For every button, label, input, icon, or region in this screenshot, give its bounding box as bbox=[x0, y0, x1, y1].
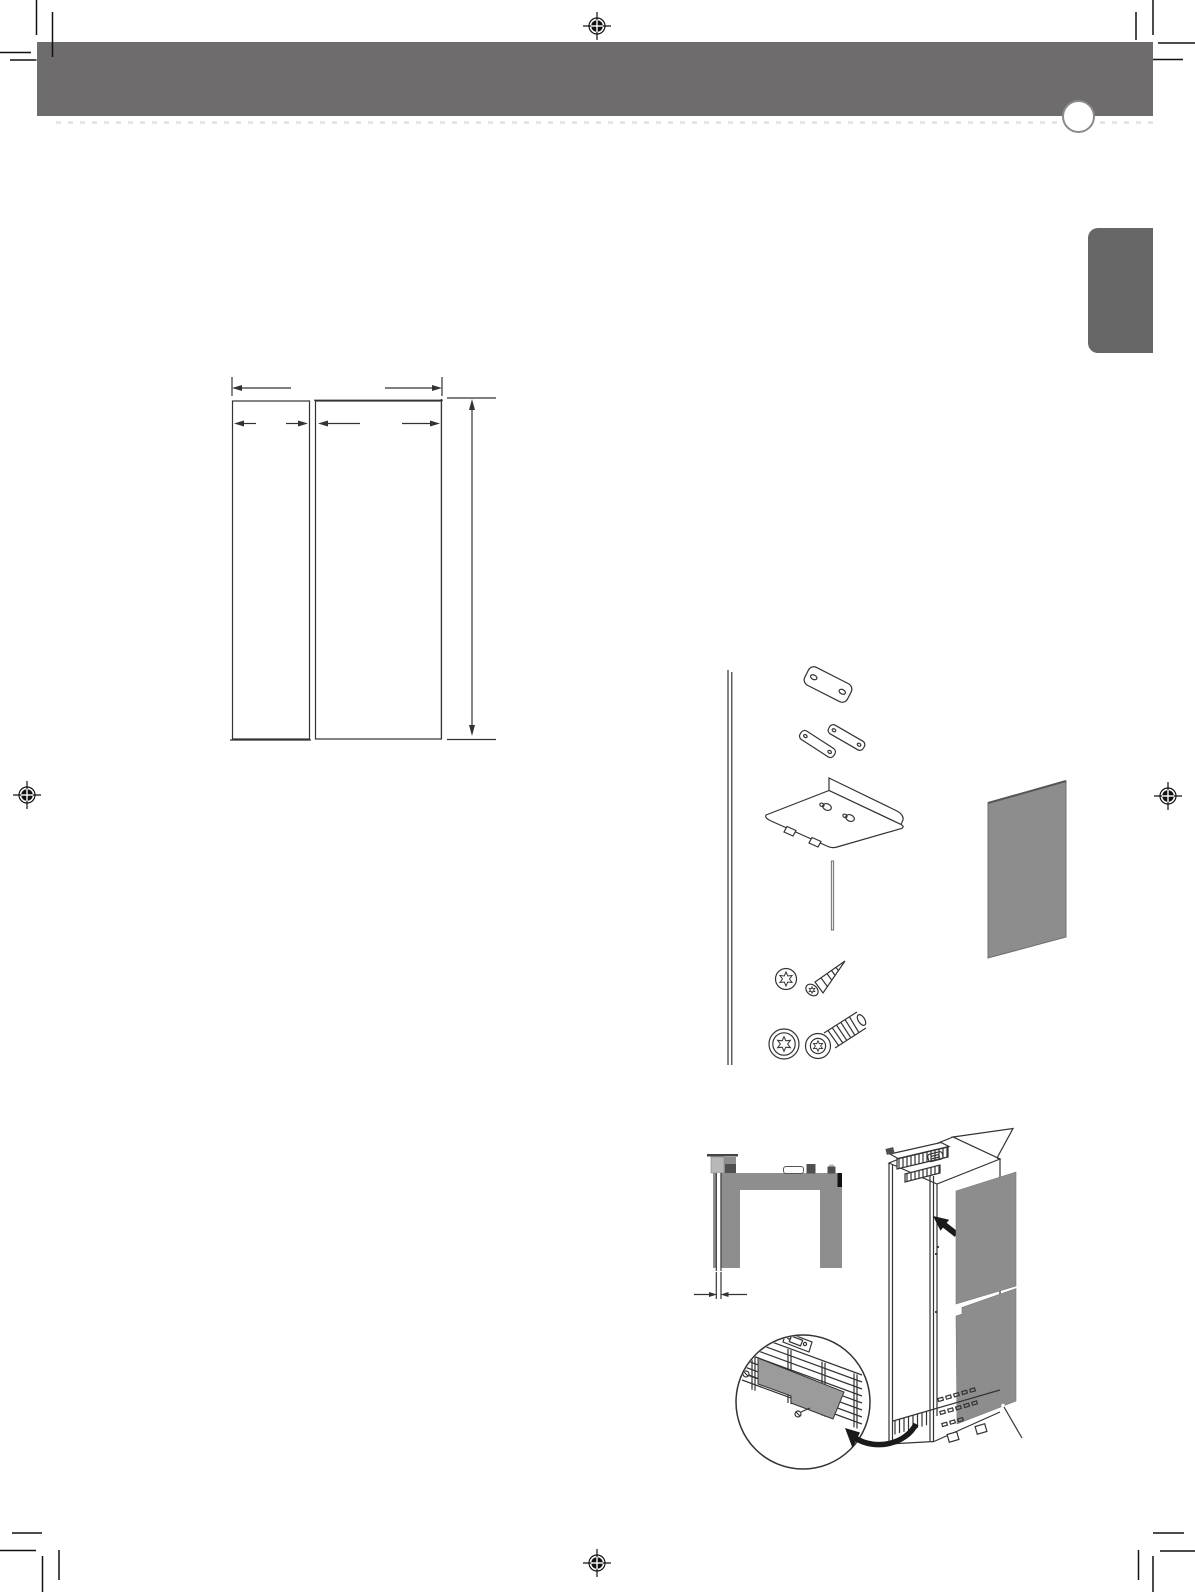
furniture-edge-line bbox=[728, 670, 732, 1065]
gap-dimension bbox=[694, 1272, 747, 1299]
mounting-rod bbox=[831, 861, 833, 930]
registration-mark-left bbox=[13, 781, 41, 809]
leader-line bbox=[1004, 1407, 1022, 1438]
foot bbox=[947, 1432, 959, 1442]
registration-mark-top bbox=[583, 12, 611, 40]
joining-plate bbox=[802, 665, 854, 705]
cabinet-top-view-figure bbox=[694, 1154, 842, 1299]
registration-mark-bottom bbox=[583, 1549, 611, 1577]
side-panel bbox=[988, 781, 1066, 958]
anti-tip-bracket bbox=[766, 778, 903, 848]
upper-door-panel bbox=[956, 1172, 1016, 1304]
panel-leader-dot bbox=[1001, 1404, 1005, 1408]
registration-mark-right bbox=[1154, 782, 1182, 810]
foot bbox=[975, 1424, 987, 1434]
side-panel-gap bbox=[717, 1173, 720, 1271]
hinge-plate bbox=[707, 1154, 738, 1157]
mounting-hardware-exploded-figure bbox=[728, 665, 1066, 1065]
small-screw-set bbox=[776, 961, 846, 998]
fridge-figure bbox=[885, 1129, 1022, 1445]
manual-page bbox=[0, 0, 1195, 1592]
door-panel-dimension-figure bbox=[230, 377, 496, 740]
page-line-art bbox=[0, 0, 1195, 1592]
cabinet-u-shape bbox=[713, 1173, 842, 1268]
large-screw-set bbox=[769, 1012, 867, 1059]
